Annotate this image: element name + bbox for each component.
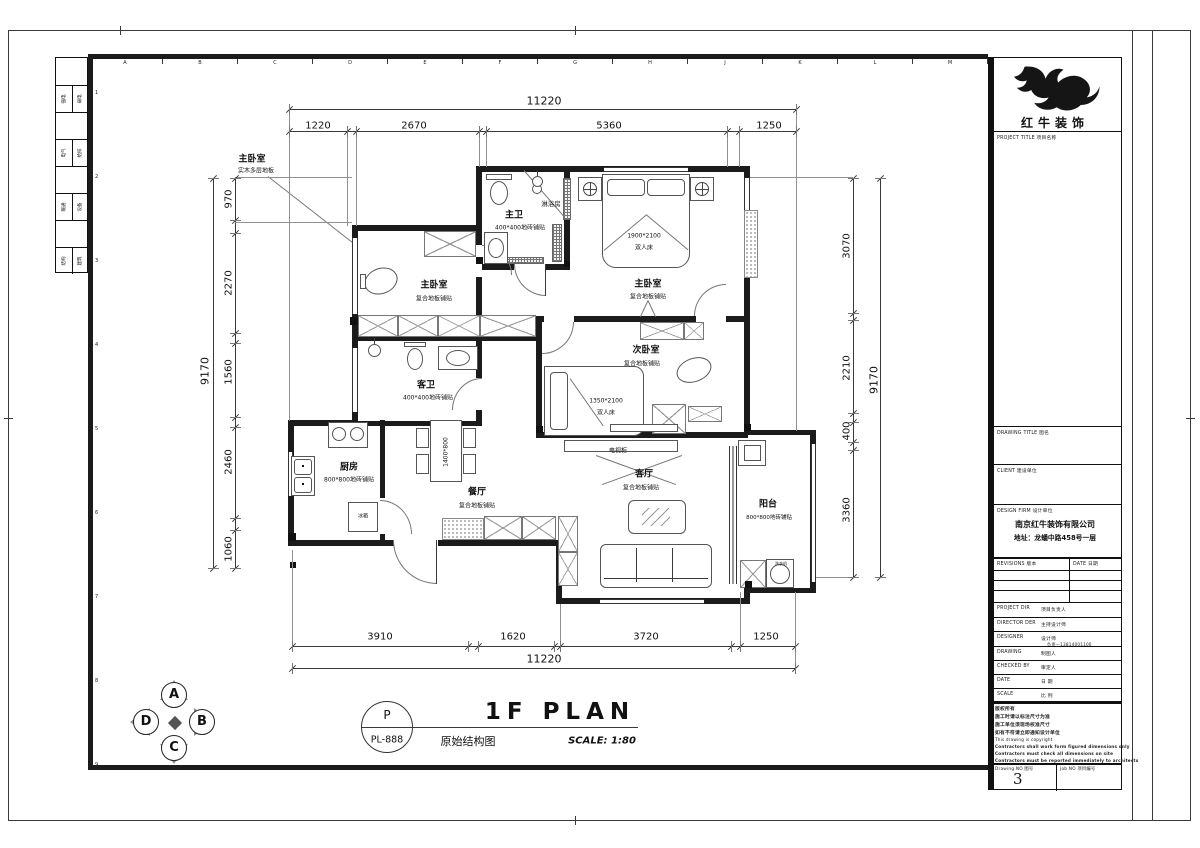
grid-tick	[312, 59, 313, 64]
pillow	[550, 372, 568, 430]
dim-right: 3360	[842, 497, 853, 522]
compass-letter-b: B	[189, 709, 215, 735]
witness-line	[235, 222, 352, 223]
fridge-label: 冰箱	[358, 513, 368, 520]
witness-line	[235, 177, 352, 178]
wall	[744, 322, 750, 434]
door-arc	[380, 500, 412, 534]
row-designer-zh: 设计师	[1041, 635, 1056, 642]
witness-stub	[795, 641, 796, 652]
column	[290, 562, 296, 568]
dim-line	[289, 109, 796, 110]
witness-stub	[208, 568, 219, 569]
compass-rose: A B C D	[128, 678, 224, 768]
burner	[350, 427, 364, 441]
sofa-seam	[636, 548, 637, 582]
column	[536, 426, 543, 433]
dim-top: 1220	[305, 121, 330, 132]
witness-line	[347, 131, 348, 226]
grid-tick	[462, 59, 463, 64]
dim-top: 5360	[596, 121, 621, 132]
plan-title: 1F PLAN	[485, 699, 635, 725]
grid-number: 1	[95, 90, 98, 96]
witness-stub	[554, 641, 555, 652]
witness-stub	[848, 422, 859, 423]
grid-letter: K	[798, 60, 801, 66]
grid-letter: L	[874, 60, 877, 66]
burner	[332, 427, 346, 441]
witness-stub	[230, 417, 241, 418]
brand-logo-icon	[1011, 62, 1101, 118]
closet-hatch	[640, 322, 684, 340]
compass-letter-c: C	[161, 735, 187, 761]
pendant-light-icon	[368, 344, 381, 357]
row-date-en: DATE	[997, 678, 1010, 683]
grid-letter: J	[724, 60, 725, 66]
window	[604, 167, 688, 172]
dim-left: 1060	[224, 536, 235, 561]
witness-stub	[468, 641, 469, 652]
grid-number: 4	[95, 342, 98, 348]
brand-name: 红牛装饰	[989, 114, 1121, 131]
ceiling-light-icon	[583, 182, 597, 196]
row-date-zh: 日 期	[1041, 678, 1053, 685]
closet-hatch	[480, 315, 536, 337]
washer-label: 洗衣机	[775, 561, 787, 567]
dim-left-total: 9170	[199, 357, 212, 385]
leader-line	[648, 300, 657, 317]
wall	[476, 166, 482, 231]
row-director-en: DIRECTOR DER	[997, 621, 1036, 626]
pillow	[607, 179, 645, 196]
bed-label: 双人床	[597, 408, 615, 417]
drawing-no-divider	[1056, 763, 1057, 791]
grid-number: 3	[95, 258, 98, 264]
washer-drum	[770, 564, 790, 584]
door-arc	[514, 264, 546, 296]
witness-stub	[230, 220, 241, 221]
entry-door-leaf	[436, 540, 437, 584]
copyright-line: This drawing is copyright	[995, 737, 1053, 742]
grid-letter: E	[423, 60, 426, 66]
witness-stub	[727, 126, 728, 137]
drawing-sheet: { "sheet": { "grid_letters": ["A","B","C…	[0, 0, 1200, 848]
drawing-no-value: 3	[1013, 770, 1023, 788]
dim-bottom: 1250	[753, 632, 778, 643]
row-drawing-zh: 制图人	[1041, 650, 1056, 657]
tv-cabinet-label: 电视柜	[609, 446, 627, 455]
witness-stub	[731, 641, 732, 652]
toilet-tank	[404, 342, 426, 347]
closet-hatch	[358, 315, 398, 337]
witness-stub	[208, 178, 219, 179]
witness-stub	[796, 126, 797, 137]
room-label: 客卫	[417, 378, 435, 391]
witness-stub	[795, 663, 796, 674]
dim-left: 1560	[224, 359, 235, 384]
witness-stub	[848, 320, 859, 321]
witness-line	[289, 109, 290, 421]
toilet-tank	[486, 174, 512, 180]
witness-line	[740, 592, 741, 646]
dim-line	[289, 131, 796, 132]
design-firm-name: 南京红牛装饰有限公司	[989, 519, 1121, 530]
dim-line	[292, 668, 795, 669]
pillow	[647, 179, 685, 196]
dim-left: 2460	[224, 449, 235, 474]
row-checked-zh: 审定人	[1041, 664, 1056, 671]
room-label: 主卫	[505, 208, 523, 221]
washbasin-bowl	[446, 350, 470, 366]
compass-letter-a: A	[161, 682, 187, 708]
column	[288, 533, 296, 541]
closet-hatch	[484, 516, 522, 540]
witness-stub	[560, 641, 561, 652]
dim-left: 970	[224, 189, 235, 208]
chair	[416, 454, 429, 474]
window	[600, 599, 704, 604]
witness-stub	[230, 333, 241, 334]
table-size-label: 1400*800	[443, 437, 450, 467]
room-label: 主卧室	[238, 152, 265, 165]
witness-stub	[848, 178, 859, 179]
dim-bottom-total: 11220	[527, 653, 562, 666]
witness-stub	[230, 427, 241, 428]
closet-hatch	[740, 560, 766, 588]
grid-letter: C	[273, 60, 277, 66]
row-designer-en: DESIGNER	[997, 635, 1023, 640]
room-label: 厨房	[340, 460, 358, 473]
closet-hatch	[558, 516, 578, 552]
sink-bowl	[294, 477, 312, 493]
copyright-line: 如有不符请立即通知设计单位	[995, 729, 1060, 736]
witness-line	[292, 550, 293, 646]
floor-label: 800*800地砖铺贴	[746, 513, 792, 521]
grid-letter: B	[198, 60, 201, 66]
dim-right: 2210	[842, 355, 853, 380]
wall	[564, 166, 570, 178]
job-no-label: Job NO 项目编号	[1060, 766, 1095, 772]
floor-label: 400*400地砖铺贴	[495, 223, 545, 232]
dim-line	[235, 178, 236, 568]
floor-label: 400*400地砖铺贴	[403, 393, 453, 402]
door-arc	[452, 378, 482, 410]
witness-stub	[478, 641, 479, 652]
pendant-stem	[374, 338, 375, 344]
grid-letter: M	[948, 60, 952, 66]
witness-stub	[347, 126, 348, 137]
light-wall-hatch	[563, 178, 571, 220]
copyright-line: 施工时请以标注尺寸为准	[995, 713, 1050, 720]
room-label: 次卧室	[632, 343, 659, 356]
toilet	[361, 263, 402, 299]
compass-letter-d: D	[133, 709, 159, 735]
wall	[476, 231, 482, 245]
column	[744, 424, 751, 431]
light-wall-hatch	[552, 224, 562, 262]
room-label: 阳台	[759, 497, 777, 510]
sink-bowl	[294, 459, 312, 475]
dim-right: 3070	[842, 233, 853, 258]
witness-stub	[848, 413, 859, 414]
witness-stub	[230, 530, 241, 531]
pendant-light-icon	[532, 176, 543, 187]
copyright-line: Contractors shall work form figured dime…	[995, 744, 1130, 749]
dim-top-total: 11220	[527, 95, 562, 108]
dim-line	[292, 646, 795, 647]
window	[352, 348, 358, 412]
grid-tick	[837, 59, 838, 64]
toilet	[673, 353, 715, 388]
column	[564, 261, 570, 267]
floor-label: 复合地板铺贴	[623, 483, 659, 492]
door-arc	[542, 322, 574, 354]
dim-bottom: 1620	[500, 632, 525, 643]
sliding-door	[729, 446, 737, 584]
door-arc	[694, 284, 726, 316]
wall	[288, 540, 394, 546]
row-director-zh: 主持设计师	[1041, 621, 1066, 628]
plan-scale: SCALE: 1:80	[568, 736, 636, 747]
grid-letter: F	[499, 60, 502, 66]
grid-letter: D	[348, 60, 352, 66]
sink-drain	[302, 483, 304, 485]
shower-screen	[524, 170, 565, 217]
wall	[438, 540, 558, 546]
revisions-label: REVISIONS 版本	[997, 560, 1036, 567]
witness-line	[356, 131, 357, 226]
pendant-stem	[537, 170, 538, 176]
leader-line	[268, 176, 353, 243]
grid-number: 7	[95, 594, 98, 600]
compass-center-icon	[168, 716, 182, 730]
floor-label: 复合地板铺贴	[624, 359, 660, 368]
copyright-line: 施工单位须现场校准尺寸	[995, 721, 1050, 728]
sofa-front	[604, 578, 708, 579]
floor-label: 实木多层地板	[238, 166, 274, 175]
dim-bottom: 3720	[633, 632, 658, 643]
grid-tick	[762, 59, 763, 64]
leader-line	[640, 300, 649, 317]
row-scale-en: SCALE	[997, 692, 1013, 697]
wall	[380, 420, 385, 498]
room-label: 主卧室	[634, 277, 661, 290]
wall	[352, 421, 482, 426]
grid-tick	[237, 59, 238, 64]
witness-line	[750, 177, 853, 178]
column	[350, 317, 358, 325]
bed-size-label: 1350*2100	[589, 398, 623, 405]
row-designer-note: 负责—13814001100	[1047, 642, 1092, 648]
bed-label: 双人床	[635, 243, 653, 252]
floor-label: 复合地板铺贴	[416, 294, 452, 303]
row-drawing-en: DRAWING	[997, 650, 1022, 655]
masonry-hatch	[442, 518, 484, 540]
sink-drain	[302, 465, 304, 467]
closet-hatch	[424, 231, 476, 257]
design-firm-address: 地址：龙蟠中路458号一层	[989, 532, 1121, 542]
sofa-seam	[672, 548, 673, 582]
witness-stub	[796, 104, 797, 115]
wall	[744, 430, 816, 435]
toilet	[490, 181, 508, 205]
title-block-edge	[989, 58, 994, 789]
witness-stub	[739, 126, 740, 137]
room-label: 餐厅	[468, 485, 486, 498]
witness-stub	[848, 450, 859, 451]
sofa	[600, 544, 712, 588]
window	[352, 238, 358, 314]
washbasin-bowl	[488, 238, 504, 258]
witness-stub	[848, 577, 859, 578]
grid-letter: H	[648, 60, 652, 66]
row-checked-en: CHECKED BY	[997, 664, 1030, 669]
witness-stub	[875, 178, 886, 179]
dim-bottom: 3910	[367, 632, 392, 643]
dim-top: 1250	[756, 121, 781, 132]
grid-number: 5	[95, 426, 98, 432]
row-project-dir-en: PROJECT DIR	[997, 606, 1030, 611]
grid-number: 6	[95, 510, 98, 516]
grid-tick	[987, 59, 988, 64]
witness-stub	[848, 313, 859, 314]
client-label: CLIENT 建设单位	[997, 467, 1037, 474]
chair	[463, 454, 476, 474]
wall	[726, 316, 748, 322]
witness-line	[796, 109, 797, 431]
closet-hatch	[684, 322, 704, 340]
toilet	[407, 348, 423, 370]
witness-stub	[292, 663, 293, 674]
row-project-dir-zh: 项目负责人	[1041, 606, 1066, 613]
project-title-label: PROJECT TITLE 项目名称	[997, 134, 1057, 141]
copyright-line: 版权所有	[995, 705, 1015, 712]
witness-line	[560, 604, 561, 646]
column	[745, 581, 752, 588]
dim-line	[213, 178, 214, 568]
witness-stub	[479, 126, 480, 137]
floor-label: 复合地板铺贴	[630, 292, 666, 301]
entry-door-arc	[393, 540, 437, 584]
wall	[380, 534, 385, 546]
ceiling-light-icon	[695, 182, 709, 196]
witness-stub	[230, 233, 241, 234]
grid-tick	[687, 59, 688, 64]
window	[744, 178, 750, 212]
closet-hatch	[438, 315, 480, 337]
balcony-window	[811, 444, 816, 582]
floor-label: 复合地板铺贴	[459, 501, 495, 510]
witness-line	[795, 592, 796, 668]
grid-number: 8	[95, 678, 98, 684]
dim-line	[853, 178, 854, 577]
plan-subtitle: 原始结构图	[441, 733, 496, 749]
witness-stub	[289, 104, 290, 115]
closet-hatch	[398, 315, 438, 337]
witness-stub	[230, 178, 241, 179]
tv-cabinet-bedroom	[610, 424, 678, 432]
design-firm-label: DESIGN FIRM 设计单位	[997, 507, 1053, 514]
copyright-line: Contractors must check all dimensions on…	[995, 751, 1113, 756]
dim-top: 2670	[401, 121, 426, 132]
title-underline	[362, 727, 638, 728]
dim-right-total: 9170	[868, 366, 881, 394]
floor-label: 800*800地砖铺贴	[324, 475, 374, 484]
date-col-label: DATE 日期	[1073, 560, 1098, 567]
door-leaf	[545, 264, 546, 296]
grid-letter: G	[573, 60, 577, 66]
bed-size-label: 1900*2100	[627, 233, 661, 240]
witness-stub	[230, 343, 241, 344]
title-block: 红牛装饰 PROJECT TITLE 项目名称 DRAWING TITLE 图名…	[988, 57, 1122, 790]
room-label: 淋浴房	[541, 198, 561, 208]
grid-tick	[162, 59, 163, 64]
row-scale-zh: 比 例	[1041, 692, 1053, 699]
closet-hatch	[522, 516, 556, 540]
masonry-hatch	[744, 210, 758, 278]
wall	[744, 588, 816, 593]
witness-stub	[848, 442, 859, 443]
witness-stub	[230, 518, 241, 519]
witness-stub	[230, 568, 241, 569]
room-label: 客厅	[635, 467, 653, 480]
closet-hatch	[688, 406, 722, 422]
witness-stub	[740, 641, 741, 652]
toilet-tank	[360, 274, 366, 289]
witness-stub	[289, 126, 290, 137]
grid-tick	[387, 59, 388, 64]
witness-stub	[875, 577, 886, 578]
grid-letter: A	[123, 60, 126, 66]
grid-number: 9	[95, 762, 98, 768]
closet-hatch	[558, 552, 578, 586]
sheet-bubble-top: P	[383, 708, 390, 722]
grid-tick	[537, 59, 538, 64]
coffee-table-glass	[642, 508, 670, 526]
drawing-title-label: DRAWING TITLE 图名	[997, 429, 1049, 436]
witness-stub	[356, 126, 357, 137]
witness-stub	[486, 126, 487, 137]
grid-number: 2	[95, 174, 98, 180]
chair	[416, 428, 429, 448]
dim-left: 2270	[224, 270, 235, 295]
chair	[463, 428, 476, 448]
column	[476, 257, 483, 264]
grid-tick	[912, 59, 913, 64]
sheet-bubble-bottom: PL-888	[371, 735, 403, 746]
witness-stub	[292, 641, 293, 652]
room-label: 主卧室	[420, 278, 447, 291]
balcony-sink-bowl	[744, 445, 761, 461]
grid-tick	[612, 59, 613, 64]
